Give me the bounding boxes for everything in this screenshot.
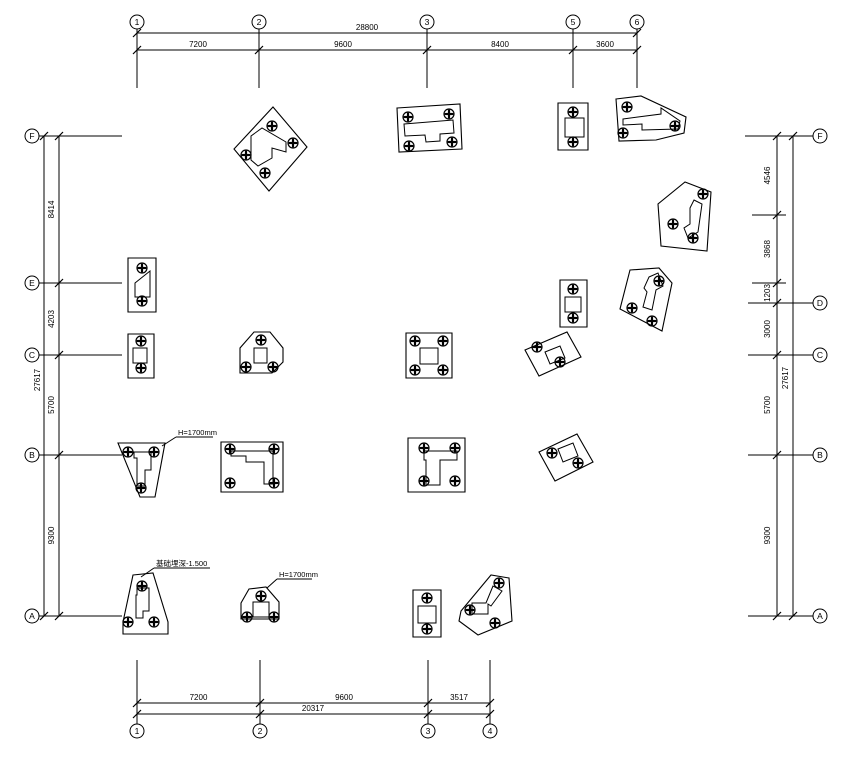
- column-marker-icon: [444, 109, 454, 119]
- column-marker-icon: [149, 447, 159, 457]
- axis-right: FDCBA45463868120330005700930027617: [745, 129, 827, 623]
- column-marker-icon: [450, 476, 460, 486]
- column-marker-icon: [647, 316, 657, 326]
- dim-label: 9300: [763, 526, 772, 544]
- column-marker-icon: [123, 617, 133, 627]
- dim-label: 5700: [763, 396, 772, 414]
- column-marker-icon: [670, 121, 680, 131]
- column-marker-icon: [123, 447, 133, 457]
- grid-bubble-label: 2: [257, 17, 262, 27]
- column-marker-icon: [698, 189, 708, 199]
- column-marker-icon: [568, 107, 578, 117]
- column-marker-icon: [410, 336, 420, 346]
- foundation-plan-drawing: 1235628800720096008400360012342031772009…: [0, 0, 852, 760]
- column-marker-icon: [450, 443, 460, 453]
- grid-bubble-label: 6: [635, 17, 640, 27]
- column-marker-icon: [568, 284, 578, 294]
- column-marker-icon: [149, 617, 159, 627]
- grid-bubble-label: 5: [571, 17, 576, 27]
- footing-15: [408, 438, 465, 492]
- footing-7: [128, 334, 154, 378]
- column-marker-icon: [668, 219, 678, 229]
- column-marker-icon: [422, 624, 432, 634]
- overall-dim-label: 27617: [781, 366, 790, 389]
- footing-9: [406, 333, 452, 378]
- column-marker-icon: [136, 336, 146, 346]
- footing-20: [459, 575, 512, 635]
- footing-10: [560, 280, 587, 327]
- annotation-2: 基础埋深-1.500: [141, 558, 210, 577]
- footing-5: [658, 182, 711, 251]
- column-marker-icon: [568, 137, 578, 147]
- dim-label: 9600: [334, 40, 352, 49]
- column-marker-icon: [241, 150, 251, 160]
- column-marker-icon: [622, 102, 632, 112]
- column-marker-icon: [555, 357, 565, 367]
- column-marker-icon: [225, 444, 235, 454]
- dim-label: 8400: [491, 40, 509, 49]
- dim-label: 9600: [335, 693, 353, 702]
- column-marker-icon: [267, 121, 277, 131]
- footing-3: [558, 103, 588, 150]
- dim-label: 9300: [47, 526, 56, 544]
- column-marker-icon: [410, 365, 420, 375]
- column-marker-icon: [137, 263, 147, 273]
- footing-19: [413, 590, 441, 637]
- grid-bubble-label: C: [29, 350, 35, 360]
- column-marker-icon: [465, 605, 475, 615]
- grid-bubble-label: 3: [425, 17, 430, 27]
- footings: [118, 96, 711, 637]
- dim-label: 3868: [763, 240, 772, 258]
- grid-bubble-label: 4: [488, 726, 493, 736]
- grid-bubble-F: F: [25, 129, 39, 143]
- grid-bubble-3: 3: [421, 724, 435, 738]
- grid-bubble-label: C: [817, 350, 823, 360]
- column-marker-icon: [494, 578, 504, 588]
- column-marker-icon: [269, 444, 279, 454]
- footing-11: [620, 268, 672, 331]
- grid-bubble-D: D: [813, 296, 827, 310]
- dim-label: 4546: [763, 166, 772, 184]
- overall-dim-label: 28800: [356, 23, 379, 32]
- grid-bubble-2: 2: [252, 15, 266, 29]
- grid-bubble-label: F: [817, 131, 822, 141]
- footing-13: [118, 443, 165, 497]
- column-marker-icon: [627, 303, 637, 313]
- dim-label: 3600: [596, 40, 614, 49]
- column-marker-icon: [137, 581, 147, 591]
- column-marker-icon: [256, 591, 266, 601]
- column-marker-icon: [269, 478, 279, 488]
- column-marker-icon: [268, 362, 278, 372]
- dim-label: 4203: [47, 310, 56, 328]
- column-marker-icon: [573, 458, 583, 468]
- column-marker-icon: [688, 233, 698, 243]
- footing-12: [525, 332, 581, 376]
- column-marker-icon: [438, 336, 448, 346]
- grid-bubble-label: 1: [135, 726, 140, 736]
- grid-bubble-C: C: [813, 348, 827, 362]
- column-marker-icon: [225, 478, 235, 488]
- dim-label: 1203: [763, 284, 772, 302]
- column-marker-icon: [269, 612, 279, 622]
- grid-bubble-A: A: [813, 609, 827, 623]
- column-marker-icon: [490, 618, 500, 628]
- column-marker-icon: [136, 483, 146, 493]
- grid-bubble-1: 1: [130, 724, 144, 738]
- overall-dim-label: 20317: [302, 704, 325, 713]
- grid-bubble-F: F: [813, 129, 827, 143]
- grid-bubble-3: 3: [420, 15, 434, 29]
- column-marker-icon: [256, 335, 266, 345]
- grid-bubble-2: 2: [253, 724, 267, 738]
- axis-top: 12356288007200960084003600: [130, 15, 644, 88]
- column-marker-icon: [532, 342, 542, 352]
- footing-4: [616, 96, 686, 141]
- annotation-1: H=1700mm: [162, 428, 217, 446]
- grid-bubble-label: A: [817, 611, 823, 621]
- grid-bubble-A: A: [25, 609, 39, 623]
- grid-bubble-label: B: [817, 450, 823, 460]
- column-marker-icon: [447, 137, 457, 147]
- annotation-label: H=1700mm: [279, 570, 318, 579]
- column-marker-icon: [288, 138, 298, 148]
- grid-bubble-E: E: [25, 276, 39, 290]
- column-marker-icon: [419, 476, 429, 486]
- column-marker-icon: [568, 313, 578, 323]
- column-marker-icon: [618, 128, 628, 138]
- footing-8: [240, 332, 283, 373]
- dim-label: 7200: [189, 40, 207, 49]
- column-marker-icon: [136, 363, 146, 373]
- column-marker-icon: [547, 448, 557, 458]
- annotation-label: H=1700mm: [178, 428, 217, 437]
- grid-bubble-C: C: [25, 348, 39, 362]
- grid-bubble-5: 5: [566, 15, 580, 29]
- grid-bubble-4: 4: [483, 724, 497, 738]
- column-marker-icon: [403, 112, 413, 122]
- overall-dim-label: 27617: [33, 368, 42, 391]
- grid-bubble-label: B: [29, 450, 35, 460]
- grid-bubble-label: 2: [258, 726, 263, 736]
- grid-bubble-label: F: [29, 131, 34, 141]
- footing-18: [241, 587, 279, 622]
- footing-14: [221, 442, 283, 492]
- dim-label: 3517: [450, 693, 468, 702]
- column-marker-icon: [260, 168, 270, 178]
- annotation-label: 基础埋深-1.500: [156, 558, 207, 568]
- grid-bubble-label: A: [29, 611, 35, 621]
- annotation-3: H=1700mm: [267, 570, 318, 588]
- footing-6: [128, 258, 156, 312]
- footing-2: [397, 104, 462, 152]
- column-marker-icon: [242, 612, 252, 622]
- dim-label: 7200: [190, 693, 208, 702]
- column-marker-icon: [404, 141, 414, 151]
- footing-17: [123, 573, 168, 634]
- footing-16: [539, 434, 593, 481]
- column-marker-icon: [419, 443, 429, 453]
- dim-label: 3000: [763, 320, 772, 338]
- column-marker-icon: [241, 362, 251, 372]
- grid-bubble-label: 1: [135, 17, 140, 27]
- column-marker-icon: [654, 276, 664, 286]
- grid-bubble-6: 6: [630, 15, 644, 29]
- footing-1: [234, 107, 307, 191]
- dim-label: 8414: [47, 200, 56, 218]
- grid-bubble-B: B: [25, 448, 39, 462]
- column-marker-icon: [438, 365, 448, 375]
- grid-bubble-label: 3: [426, 726, 431, 736]
- cad-foundation-plan: 1235628800720096008400360012342031772009…: [0, 0, 852, 760]
- column-marker-icon: [422, 593, 432, 603]
- axis-left: FECBA841442035700930027617: [25, 129, 122, 623]
- grid-bubble-1: 1: [130, 15, 144, 29]
- dim-label: 5700: [47, 396, 56, 414]
- column-marker-icon: [137, 296, 147, 306]
- grid-bubble-B: B: [813, 448, 827, 462]
- grid-bubble-label: D: [817, 298, 823, 308]
- axis-bottom: 123420317720096003517: [130, 660, 497, 738]
- grid-bubble-label: E: [29, 278, 35, 288]
